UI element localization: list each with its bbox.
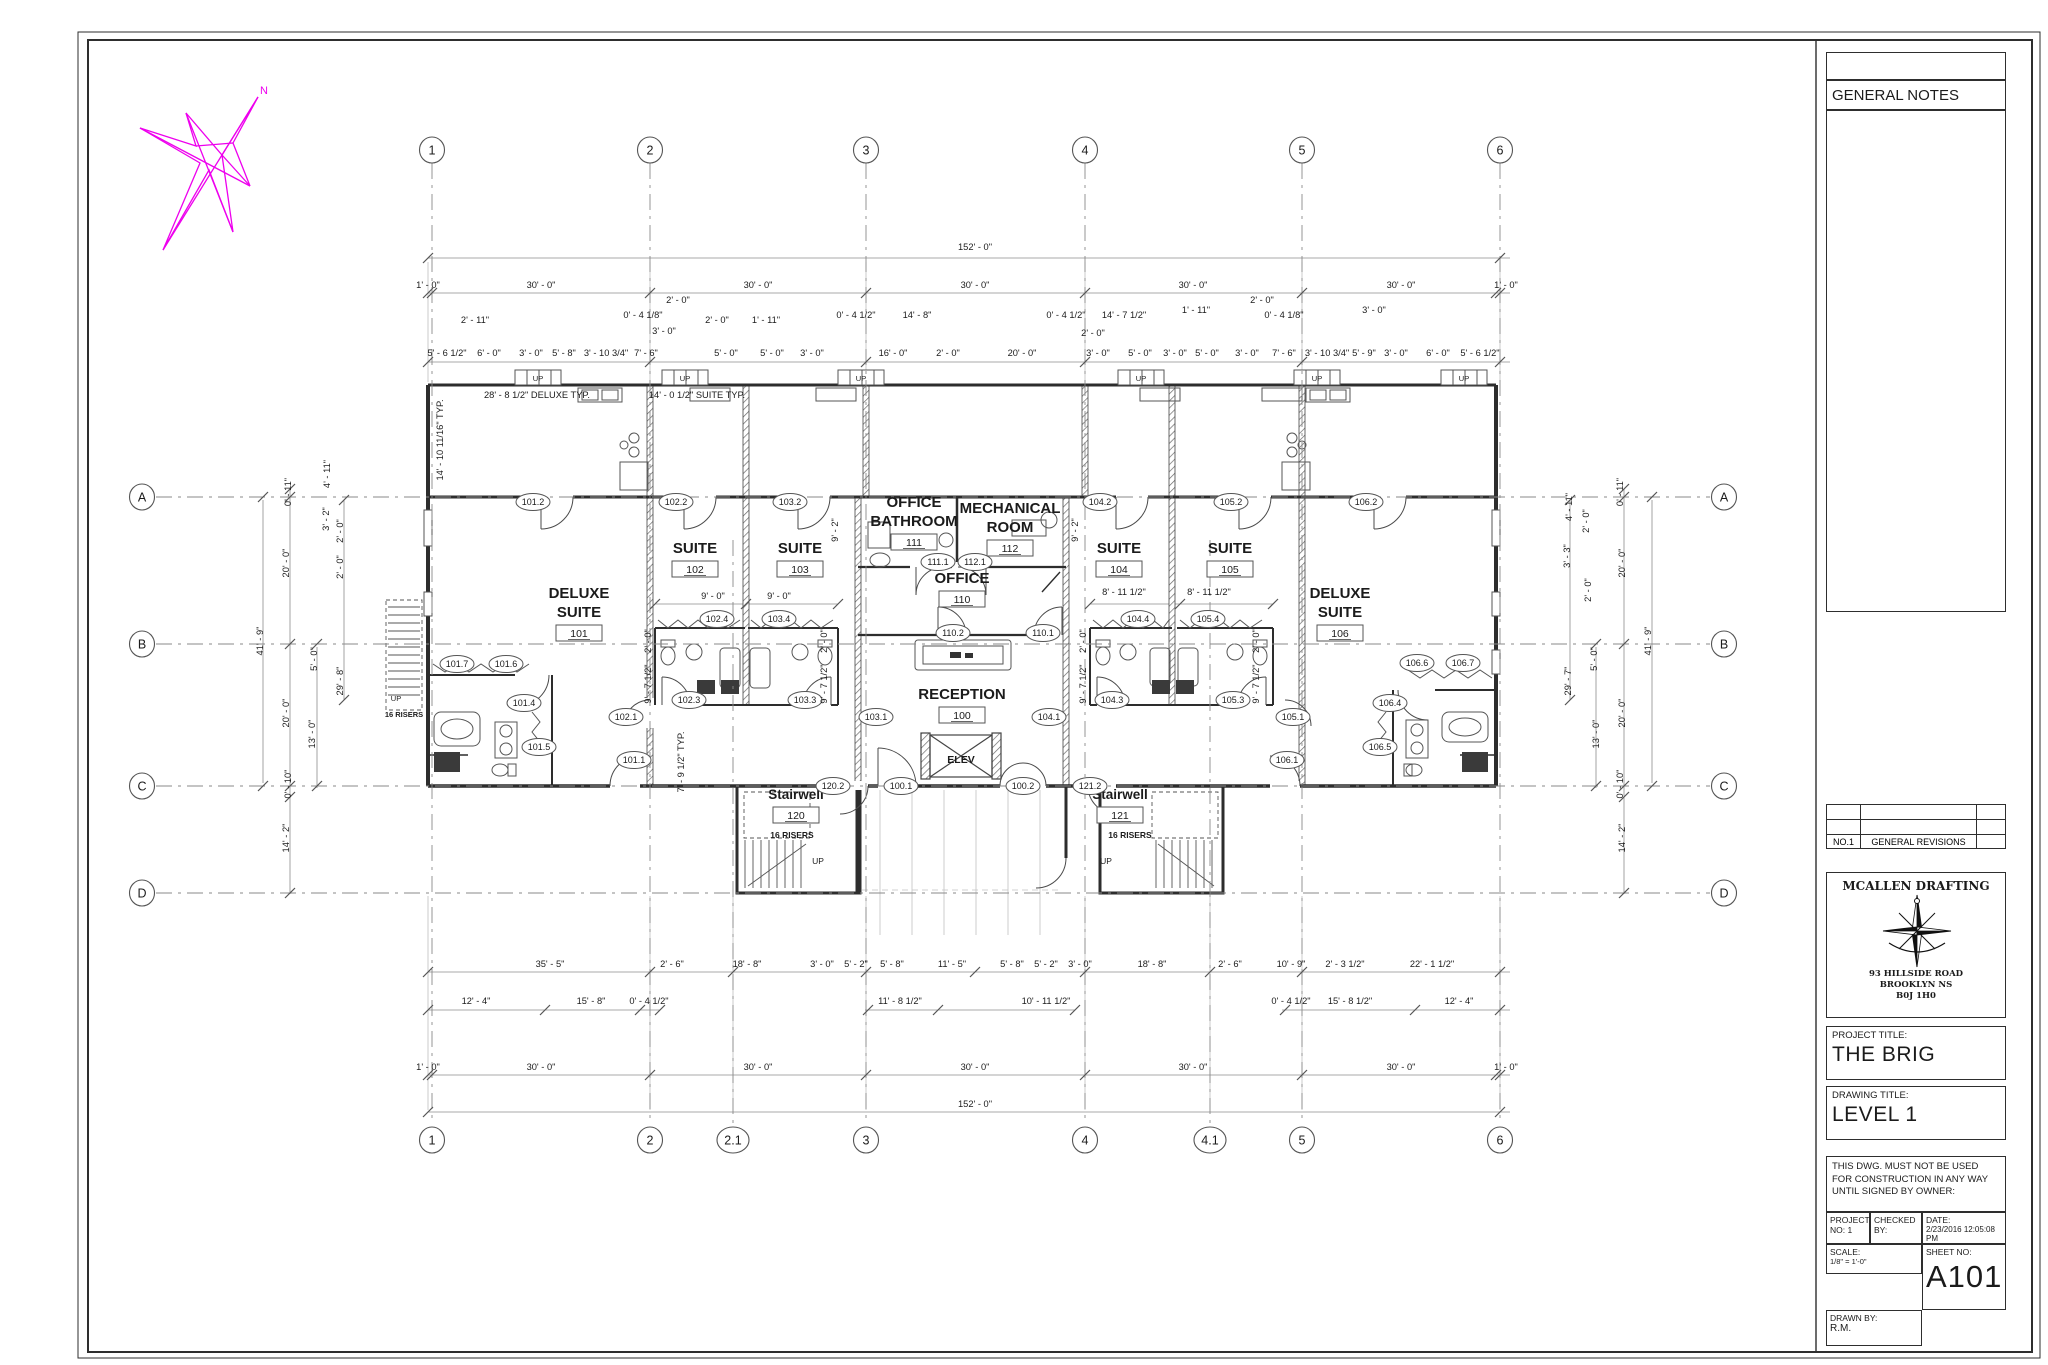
dim-label: 12' - 4" bbox=[1445, 996, 1474, 1006]
plan-text: UP bbox=[1459, 374, 1469, 383]
general-notes-bar: GENERAL NOTES bbox=[1826, 80, 2006, 110]
room-name: SUITE bbox=[673, 540, 717, 557]
dim-label: 30' - 0" bbox=[527, 280, 556, 290]
revision-desc: GENERAL REVISIONS bbox=[1861, 835, 1977, 848]
room-number: 105 bbox=[1221, 564, 1239, 576]
dim-label: 5' - 6 1/2" bbox=[1460, 348, 1499, 358]
door-tag-label: 102.4 bbox=[706, 614, 729, 624]
dim-label: 30' - 0" bbox=[744, 280, 773, 290]
door-tag-label: 112.1 bbox=[964, 557, 986, 567]
grid-bubble-label: B bbox=[1720, 638, 1728, 652]
door-tag-label: 102.2 bbox=[665, 497, 688, 507]
door-tag-label: 105.1 bbox=[1282, 712, 1305, 722]
dim-label: 29' - 8" bbox=[335, 667, 345, 696]
dim-label: 3' - 3" bbox=[1562, 544, 1572, 568]
room-number: 100 bbox=[953, 710, 971, 722]
dim-label: 3' - 0" bbox=[652, 326, 676, 336]
dim-label: 3' - 0" bbox=[800, 348, 824, 358]
dim-label: 3' - 10 3/4" bbox=[1305, 348, 1349, 358]
grid-bubble-label: A bbox=[1720, 491, 1729, 505]
dim-label: 14' - 0 1/2" SUITE TYP. bbox=[649, 390, 745, 400]
dim-label: 20' - 0" bbox=[281, 699, 291, 728]
dim-label: 14' - 10 11/16" TYP. bbox=[435, 399, 445, 480]
drawn-by-label: DRAWN BY: bbox=[1830, 1313, 1918, 1323]
dim-label: 11' - 5" bbox=[938, 959, 966, 969]
dim-label: 14' - 7 1/2" bbox=[1102, 310, 1146, 320]
firm-box: MCALLEN DRAFTING 93 HILLSIDE ROAD BROOKL… bbox=[1826, 872, 2006, 1018]
date-label: DATE: bbox=[1926, 1215, 2002, 1225]
grid-bubble-label: 5 bbox=[1299, 1134, 1306, 1148]
dim-label: 3' - 0" bbox=[1068, 959, 1092, 969]
plan-text: UP bbox=[856, 374, 866, 383]
room-name: MECHANICAL bbox=[960, 500, 1061, 517]
dim-label: 30' - 0" bbox=[1387, 280, 1416, 290]
door-tag-label: 110.1 bbox=[1032, 628, 1054, 638]
entry-walkway bbox=[862, 790, 1062, 935]
general-notes-title: GENERAL NOTES bbox=[1827, 81, 2005, 104]
dim-label: 1' - 11" bbox=[1182, 305, 1210, 315]
dim-label: 3' - 0" bbox=[519, 348, 543, 358]
dim-label: 2' - 0" bbox=[1583, 578, 1593, 602]
dim-label: 2' - 0" bbox=[1078, 629, 1088, 653]
dim-label: 15' - 8" bbox=[577, 996, 606, 1006]
dim-label: 3' - 2" bbox=[321, 507, 331, 531]
dim-label: 13' - 0" bbox=[1591, 720, 1601, 749]
grid-bubble-label: 4 bbox=[1082, 1134, 1089, 1148]
room-name: SUITE bbox=[557, 604, 601, 621]
dim-label: 9' - 7 1/2" bbox=[1251, 664, 1261, 703]
dim-label: 0' - 4 1/8" bbox=[1264, 310, 1303, 320]
dim-label: 28' - 8 1/2" DELUXE TYP. bbox=[484, 390, 590, 400]
door-tag-label: 104.2 bbox=[1089, 497, 1112, 507]
dim-label: 18' - 8" bbox=[1138, 959, 1167, 969]
dim-label: 8' - 11 1/2" bbox=[1187, 587, 1231, 597]
grid-bubble-label: 4 bbox=[1082, 144, 1089, 158]
grid-bubble-label: 6 bbox=[1497, 1134, 1504, 1148]
firm-address2: BROOKLYN NS bbox=[1827, 980, 2005, 991]
door-tag-label: 104.3 bbox=[1101, 695, 1124, 705]
dim-label: 6' - 0" bbox=[1426, 348, 1450, 358]
dim-label: 30' - 0" bbox=[1179, 1062, 1208, 1072]
general-notes-body bbox=[1826, 110, 2006, 612]
dim-label: 7' - 9 1/2" TYP. bbox=[676, 731, 686, 792]
plan-text: 16 RISERS bbox=[770, 830, 814, 840]
dim-label: 5' - 8" bbox=[880, 959, 904, 969]
dim-label: 13' - 0" bbox=[307, 720, 317, 749]
dim-label: 3' - 0" bbox=[1384, 348, 1408, 358]
dim-label: 9' - 7 1/2" bbox=[819, 664, 829, 703]
dim-label: 35' - 5" bbox=[536, 959, 565, 969]
dim-label: 9' - 2" bbox=[1070, 518, 1080, 542]
plan-text: UP bbox=[1312, 374, 1322, 383]
dim-label: 0' - 4 1/2" bbox=[629, 996, 668, 1006]
door-tag-label: 103.3 bbox=[794, 695, 817, 705]
dim-label: 5' - 0" bbox=[1589, 647, 1599, 671]
dim-label: 3' - 0" bbox=[810, 959, 834, 969]
dim-label: 2' - 0" bbox=[1251, 629, 1261, 653]
room-name: BATHROOM bbox=[870, 513, 957, 530]
revision-no: NO.1 bbox=[1827, 835, 1861, 848]
grid-bubble-label: 3 bbox=[863, 144, 870, 158]
dim-label: 4' - 11" bbox=[322, 460, 332, 488]
room-number: 106 bbox=[1331, 628, 1349, 640]
checked-by-label: CHECKED BY: bbox=[1874, 1215, 1916, 1235]
dim-label: 152' - 0" bbox=[958, 242, 992, 252]
dim-label: 0' - 4 1/2" bbox=[1271, 996, 1310, 1006]
dim-label: 3' - 10 3/4" bbox=[584, 348, 628, 358]
door-tag-label: 101.5 bbox=[528, 742, 551, 752]
plan-text: UP bbox=[1100, 856, 1112, 866]
room-number: 103 bbox=[791, 564, 809, 576]
dim-label: 7' - 6" bbox=[634, 348, 658, 358]
door-tag-label: 106.2 bbox=[1355, 497, 1378, 507]
dim-label: 2' - 6" bbox=[1218, 959, 1242, 969]
dim-label: 0' - 11" bbox=[283, 478, 293, 506]
door-tag-label: 104.1 bbox=[1038, 712, 1061, 722]
grid-bubble-label: 6 bbox=[1497, 144, 1504, 158]
dim-label: 30' - 0" bbox=[744, 1062, 773, 1072]
plan-text: ELEV bbox=[947, 754, 974, 766]
dim-label: 30' - 0" bbox=[527, 1062, 556, 1072]
dim-label: 14' - 2" bbox=[1617, 824, 1627, 853]
room-name: OFFICE bbox=[887, 494, 942, 511]
dim-label: 2' - 11" bbox=[461, 315, 489, 325]
dim-label: 5' - 9" bbox=[1352, 348, 1376, 358]
door-tag-label: 100.1 bbox=[890, 781, 913, 791]
door-tag-label: 105.4 bbox=[1197, 614, 1220, 624]
room-name: SUITE bbox=[1318, 604, 1362, 621]
door-tag-label: 101.6 bbox=[495, 659, 518, 669]
door-tag-label: 102.3 bbox=[678, 695, 701, 705]
dim-label: 6' - 0" bbox=[477, 348, 501, 358]
dim-label: 5' - 2" bbox=[1034, 959, 1058, 969]
grid-bubble-label: 4.1 bbox=[1201, 1134, 1218, 1148]
disclaimer-box: THIS DWG. MUST NOT BE USED FOR CONSTRUCT… bbox=[1826, 1156, 2006, 1212]
dim-label: 2' - 0" bbox=[335, 555, 345, 579]
revision-table: NO.1 GENERAL REVISIONS bbox=[1826, 804, 2006, 849]
scale-value: 1/8" = 1'-0" bbox=[1830, 1257, 1918, 1266]
stairwell-120-stairs bbox=[744, 792, 810, 888]
titleblock-fields: PROJECT NO: 1 CHECKED BY: DATE: 2/23/201… bbox=[1826, 1212, 2006, 1346]
grid-bubble-label: 3 bbox=[863, 1134, 870, 1148]
room-name: Stairwell bbox=[768, 787, 824, 802]
room-name: DELUXE bbox=[549, 585, 610, 602]
room-number: 112 bbox=[1002, 543, 1019, 555]
door-tag-label: 100.2 bbox=[1012, 781, 1035, 791]
dim-label: 5' - 8" bbox=[1000, 959, 1024, 969]
dim-label: 2' - 0" bbox=[936, 348, 960, 358]
door-tag-label: 102.1 bbox=[615, 712, 638, 722]
dim-label: 1' - 11" bbox=[752, 315, 780, 325]
drawn-by: R.M. bbox=[1830, 1323, 1918, 1334]
dim-label: 2' - 0" bbox=[666, 295, 690, 305]
titleblock-empty-box bbox=[1826, 52, 2006, 80]
dim-label: 1' - 0" bbox=[1494, 1062, 1518, 1072]
room-number: 110 bbox=[954, 594, 971, 606]
project-no-label: PROJECT NO: 1 bbox=[1830, 1215, 1870, 1235]
dim-label: 9' - 0" bbox=[767, 591, 791, 601]
dim-label: 3' - 0" bbox=[1235, 348, 1259, 358]
plan-text: UP bbox=[680, 374, 690, 383]
room-number: 101 bbox=[570, 628, 588, 640]
dim-label: 9' - 7 1/2" bbox=[643, 664, 653, 703]
room-name: SUITE bbox=[778, 540, 822, 557]
door-tag-label: 106.1 bbox=[1276, 755, 1299, 765]
dim-label: 30' - 0" bbox=[1387, 1062, 1416, 1072]
dim-label: 8' - 11 1/2" bbox=[1102, 587, 1146, 597]
drawing-sheet: { "title_block": { "general_notes": "GEN… bbox=[0, 0, 2048, 1365]
door-tag-label: 103.2 bbox=[779, 497, 802, 507]
plan-text: 16 RISERS bbox=[1108, 830, 1152, 840]
dim-label: 12' - 4" bbox=[462, 996, 491, 1006]
room-name: SUITE bbox=[1208, 540, 1252, 557]
dim-label: 5' - 2" bbox=[844, 959, 868, 969]
door-tag-label: 110.2 bbox=[942, 628, 964, 638]
dim-label: 11' - 8 1/2" bbox=[878, 996, 922, 1006]
dim-label: 0' - 10" bbox=[283, 770, 293, 799]
plan-text: UP bbox=[533, 374, 543, 383]
disclaimer-text: THIS DWG. MUST NOT BE USED FOR CONSTRUCT… bbox=[1827, 1157, 2005, 1203]
dim-label: 1' - 0" bbox=[416, 1062, 440, 1072]
plan-text: 16 RISERS bbox=[385, 710, 423, 719]
dim-label: 18' - 8" bbox=[733, 959, 762, 969]
grid-bubble-label: B bbox=[138, 638, 146, 652]
dim-label: 3' - 0" bbox=[1362, 305, 1386, 315]
dim-label: 2' - 0" bbox=[643, 629, 653, 653]
dim-label: 2' - 0" bbox=[705, 315, 729, 325]
dim-label: 10' - 11 1/2" bbox=[1022, 996, 1071, 1006]
dim-label: 2' - 0" bbox=[1581, 509, 1591, 533]
dim-label: 5' - 0" bbox=[1195, 348, 1219, 358]
dim-label: 5' - 0" bbox=[714, 348, 738, 358]
grid-bubble-label: 2 bbox=[647, 144, 654, 158]
room-number: 104 bbox=[1110, 564, 1128, 576]
dim-label: 20' - 0" bbox=[1008, 348, 1037, 358]
plan-text: UP bbox=[1136, 374, 1146, 383]
dim-label: 0' - 4 1/2" bbox=[836, 310, 875, 320]
plan-text: UP bbox=[391, 694, 401, 703]
firm-address1: 93 HILLSIDE ROAD bbox=[1827, 969, 2005, 980]
room-name: DELUXE bbox=[1310, 585, 1371, 602]
dim-label: 0' - 11" bbox=[1615, 478, 1625, 506]
door-gaps bbox=[541, 492, 1406, 790]
door-tag-label: 106.4 bbox=[1379, 698, 1402, 708]
date-value: 2/23/2016 12:05:08 PM bbox=[1926, 1225, 2002, 1243]
dim-label: 1' - 0" bbox=[416, 280, 440, 290]
sheet-border bbox=[78, 32, 2040, 1358]
north-arrow-icon bbox=[140, 97, 258, 250]
dim-label: 9' - 0" bbox=[701, 591, 725, 601]
door-tag-label: 111.1 bbox=[927, 557, 948, 567]
drawing-title: LEVEL 1 bbox=[1827, 1101, 2005, 1127]
grid-bubble-label: 2.1 bbox=[724, 1134, 741, 1148]
door-tag-label: 106.6 bbox=[1406, 658, 1429, 668]
dim-label: 152' - 0" bbox=[958, 1099, 992, 1109]
plan-text: UP bbox=[812, 856, 824, 866]
door-tag-label: 101.7 bbox=[446, 659, 469, 669]
dim-label: 16' - 0" bbox=[879, 348, 908, 358]
door-tag-label: 121.2 bbox=[1079, 781, 1102, 791]
dim-label: 9' - 2" bbox=[830, 518, 840, 542]
grid-bubble-label: C bbox=[1719, 780, 1728, 794]
dim-label: 2' - 0" bbox=[1081, 328, 1105, 338]
dim-label: 15' - 8 1/2" bbox=[1328, 996, 1372, 1006]
grid-bubble-label: 5 bbox=[1299, 144, 1306, 158]
room-name: OFFICE bbox=[935, 570, 990, 587]
dim-label: 4' - 11" bbox=[1564, 493, 1574, 521]
dim-label: 0' - 10" bbox=[1615, 770, 1625, 799]
door-tag-label: 106.7 bbox=[1452, 658, 1475, 668]
room-name: SUITE bbox=[1097, 540, 1141, 557]
dim-label: 20' - 0" bbox=[281, 549, 291, 578]
firm-name: MCALLEN DRAFTING bbox=[1827, 879, 2005, 893]
floor-plan: 11222.133444.15566AABBCCDDDELUXESUITE101… bbox=[0, 0, 2048, 1365]
dim-label: 5' - 8" bbox=[552, 348, 576, 358]
room-name: RECEPTION bbox=[918, 686, 1006, 703]
project-title-label: PROJECT TITLE: bbox=[1827, 1027, 2005, 1041]
door-tag-label: 106.5 bbox=[1369, 742, 1392, 752]
sheet-no-label: SHEET NO: bbox=[1926, 1247, 2002, 1257]
project-title: THE BRIG bbox=[1827, 1041, 2005, 1067]
dim-label: 3' - 0" bbox=[1086, 348, 1110, 358]
dim-label: 20' - 0" bbox=[1617, 549, 1627, 578]
dim-label: 0' - 4 1/8" bbox=[623, 310, 662, 320]
dim-label: 20' - 0" bbox=[1617, 699, 1627, 728]
grid-bubble-label: D bbox=[1719, 887, 1728, 901]
room-number: 111 bbox=[906, 537, 922, 549]
grid-bubble-label: 1 bbox=[429, 144, 436, 158]
dim-label: 41' - 9" bbox=[1643, 627, 1653, 656]
grid-bubble-label: 2 bbox=[647, 1134, 654, 1148]
dim-label: 9' - 7 1/2" bbox=[1078, 664, 1088, 703]
project-title-box: PROJECT TITLE: THE BRIG bbox=[1826, 1026, 2006, 1080]
dim-label: 41' - 9" bbox=[255, 627, 265, 656]
dim-label: 5' - 0" bbox=[309, 647, 319, 671]
door-tag-label: 104.4 bbox=[1127, 614, 1150, 624]
sheet-no: A101 bbox=[1926, 1259, 2002, 1295]
dim-label: 30' - 0" bbox=[1179, 280, 1208, 290]
door-tag-label: 101.1 bbox=[623, 755, 646, 765]
grid-bubble-label: D bbox=[137, 887, 146, 901]
dim-label: 5' - 0" bbox=[1128, 348, 1152, 358]
dim-label: 30' - 0" bbox=[961, 280, 990, 290]
door-tag-label: 101.2 bbox=[522, 497, 545, 507]
stairwell-121-stairs bbox=[1152, 792, 1218, 888]
dim-label: 30' - 0" bbox=[961, 1062, 990, 1072]
dim-label: 2' - 6" bbox=[660, 959, 684, 969]
firm-logo-compass-icon bbox=[1827, 893, 2007, 969]
dim-label: 0' - 4 1/2" bbox=[1046, 310, 1085, 320]
door-tag-label: 120.2 bbox=[822, 781, 845, 791]
room-number: 121 bbox=[1111, 810, 1129, 822]
dim-label: 22' - 1 1/2" bbox=[1410, 959, 1454, 969]
grid-bubble-label: A bbox=[138, 491, 147, 505]
dim-label: 10' - 9" bbox=[1277, 959, 1306, 969]
door-tag-label: 105.2 bbox=[1220, 497, 1243, 507]
door-tag-label: 103.4 bbox=[768, 614, 791, 624]
dim-label: 14' - 8" bbox=[903, 310, 932, 320]
room-number: 120 bbox=[787, 810, 805, 822]
dim-label: 5' - 0" bbox=[760, 348, 784, 358]
dim-label: 14' - 2" bbox=[281, 824, 291, 853]
room-number: 102 bbox=[686, 564, 704, 576]
dim-label: 2' - 0" bbox=[335, 519, 345, 543]
firm-address3: B0J 1H0 bbox=[1827, 991, 2005, 1002]
deck-stairs bbox=[515, 370, 1487, 385]
dim-label: 7' - 6" bbox=[1272, 348, 1296, 358]
drawing-title-box: DRAWING TITLE: LEVEL 1 bbox=[1826, 1086, 2006, 1140]
dim-label: 1' - 0" bbox=[1494, 280, 1518, 290]
scale-label: SCALE: bbox=[1830, 1247, 1918, 1257]
grid-bubble-label: 1 bbox=[429, 1134, 436, 1148]
dim-label: 5' - 6 1/2" bbox=[427, 348, 466, 358]
dim-label: 2' - 0" bbox=[819, 629, 829, 653]
reception-desk bbox=[915, 640, 1011, 670]
door-tag-label: 105.3 bbox=[1222, 695, 1245, 705]
dim-label: 29' - 7" bbox=[1563, 667, 1573, 696]
north-label: N bbox=[260, 85, 268, 97]
door-tag-label: 101.4 bbox=[513, 698, 536, 708]
dim-label: 2' - 0" bbox=[1250, 295, 1274, 305]
room-name: ROOM bbox=[987, 519, 1034, 536]
dim-label: 2' - 3 1/2" bbox=[1325, 959, 1364, 969]
door-tag-label: 103.1 bbox=[865, 712, 888, 722]
drawing-title-label: DRAWING TITLE: bbox=[1827, 1087, 2005, 1101]
dim-label: 3' - 0" bbox=[1163, 348, 1187, 358]
grid-bubble-label: C bbox=[137, 780, 146, 794]
